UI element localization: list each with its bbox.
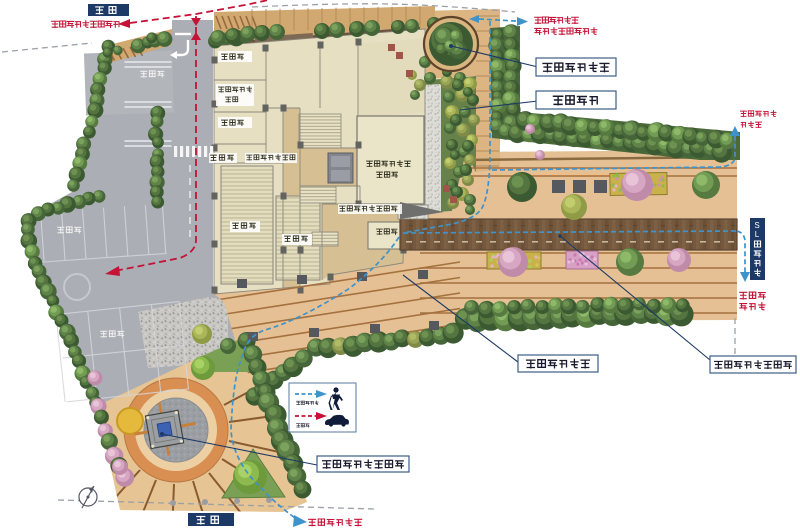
svg-text:S: S	[754, 221, 759, 230]
svg-text:L: L	[755, 230, 760, 239]
